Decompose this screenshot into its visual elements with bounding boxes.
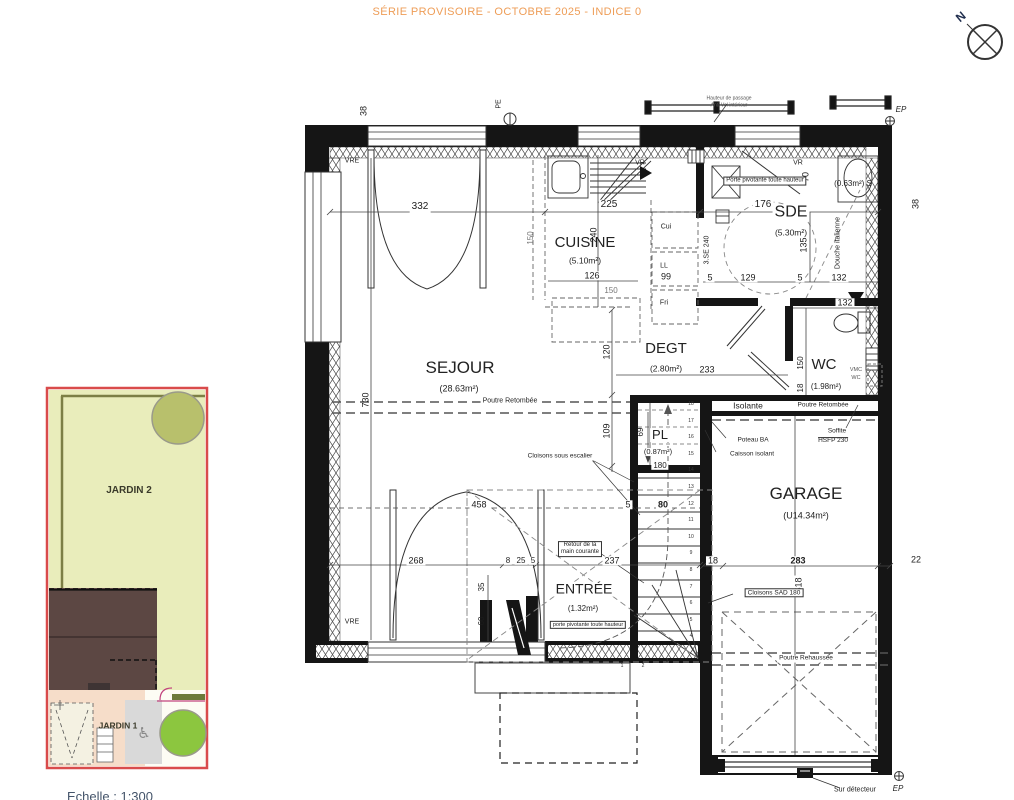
dim-135: 135 bbox=[799, 237, 808, 252]
dim-176: 176 bbox=[753, 200, 774, 211]
dim-268: 268 bbox=[406, 556, 425, 565]
dim-69: 69 bbox=[637, 428, 645, 437]
winder-step-number: 1 bbox=[621, 663, 624, 669]
stair-step-number: 10 bbox=[688, 534, 694, 540]
tree-green bbox=[160, 710, 206, 756]
room-pl-area: (0.87m²) bbox=[642, 448, 674, 456]
vr-tag-kitchen: VR bbox=[635, 159, 645, 166]
dim-332: 332 bbox=[410, 202, 431, 213]
beam-label-garage: Poutre Retombée bbox=[796, 403, 851, 410]
dim-132-wc-top: 132 bbox=[835, 298, 854, 307]
dim-120: 120 bbox=[602, 342, 611, 361]
wheelchair-icon: ♿ bbox=[137, 726, 150, 742]
pivot-door-label-entree: porte pivotante toute hauteur bbox=[550, 621, 626, 629]
beam-label-sejour: Poutre Retombée bbox=[481, 397, 540, 404]
appliance-fri: Fri bbox=[660, 299, 668, 306]
dim-80: 80 bbox=[656, 500, 670, 509]
ep-tag-bottom: EP bbox=[893, 785, 904, 793]
vmc-label-line2: WC bbox=[851, 376, 860, 382]
dim-283: 283 bbox=[788, 556, 807, 565]
dim-225: 225 bbox=[599, 200, 620, 211]
stair-step-number: 12 bbox=[688, 501, 694, 507]
stair-step-number: 9 bbox=[690, 550, 693, 556]
room-degt-area: (2.80m²) bbox=[650, 365, 682, 374]
dim-25: 25 bbox=[515, 557, 528, 565]
dim-458: 458 bbox=[469, 500, 488, 509]
stair-step-number: 13 bbox=[688, 484, 694, 490]
appliance-ll: LL bbox=[660, 262, 668, 269]
room-sde-area: (5.30m²) bbox=[773, 229, 809, 238]
dim-109: 109 bbox=[602, 421, 611, 440]
room-cuisine-area: (5.10m²) bbox=[569, 257, 601, 266]
room-sejour-name: SEJOUR bbox=[426, 359, 495, 377]
cloisons-sad-label: Cloisons SAD 180 bbox=[745, 588, 804, 597]
dim-132-sde: 132 bbox=[829, 273, 848, 282]
stair-step-number: 15 bbox=[688, 451, 694, 457]
parking-spot bbox=[51, 703, 93, 764]
pivot-door-label-sde: Porte pivotante toute hauteur bbox=[723, 177, 806, 186]
stair-step-number: 17 bbox=[688, 418, 694, 424]
dim-99: 99 bbox=[661, 272, 671, 281]
handrail-note-line2: main courante bbox=[561, 549, 599, 555]
jardin1-label: JARDIN 1 bbox=[99, 722, 138, 731]
dim-18-wc: 18 bbox=[797, 384, 805, 393]
sheet-title: SÉRIE PROVISOIRE - OCTOBRE 2025 - INDICE… bbox=[372, 7, 641, 19]
dim-60: 60 bbox=[478, 617, 486, 626]
soffite-label-line1: Soffite bbox=[828, 429, 846, 436]
appliance-cui: Cui bbox=[661, 223, 672, 230]
building-footprint bbox=[49, 588, 157, 690]
room-entree-name: ENTRÉE bbox=[554, 582, 615, 597]
canopy-outline bbox=[500, 693, 637, 763]
scale-label: Echelle : 1:300 bbox=[67, 790, 153, 800]
dim-129: 129 bbox=[738, 273, 757, 282]
dim-5-porch: 5 bbox=[529, 557, 537, 565]
hall-ceiling-cross bbox=[467, 490, 712, 662]
porch-slab bbox=[475, 663, 630, 693]
passage-note-line1: Hauteur de passage bbox=[706, 96, 751, 101]
stair-step-number: 11 bbox=[688, 517, 693, 523]
dim-240-cuisine: 240 bbox=[589, 227, 598, 242]
window-tag-vre-bottom: VRE bbox=[345, 618, 359, 625]
room-wc-name: WC bbox=[810, 357, 839, 373]
sur-detecteur-label: Sur détecteur bbox=[834, 786, 876, 793]
windows bbox=[305, 126, 800, 662]
dim-730: 730 bbox=[361, 392, 370, 407]
passage-note-line2: Anti-Vol intérieur bbox=[711, 103, 748, 108]
winder-step-number: 3 bbox=[666, 658, 669, 664]
dim-150-kitchen: 150 bbox=[602, 287, 619, 295]
poteau-ba-label: Poteau BA bbox=[737, 438, 768, 445]
floor-plan-sheet: SÉRIE PROVISOIRE - OCTOBRE 2025 - INDICE… bbox=[0, 0, 1014, 800]
stair-step-number: 18 bbox=[688, 401, 694, 407]
dim-150-wc: 150 bbox=[797, 356, 805, 369]
sliding-door-tag: 3.SE 240 bbox=[703, 236, 710, 265]
north-compass bbox=[967, 24, 1002, 59]
stair-step-number: 16 bbox=[688, 434, 694, 440]
stair-step-number: 14 bbox=[688, 467, 694, 473]
room-entree-area: (1.32m²) bbox=[566, 605, 600, 613]
stair-step-number: 7 bbox=[690, 584, 693, 590]
jardin2-label: JARDIN 2 bbox=[106, 486, 152, 497]
cloisons-escalier-label: Cloisons sous escalier bbox=[526, 454, 595, 461]
stair-step-number: 8 bbox=[690, 567, 693, 573]
dim-35: 35 bbox=[478, 583, 486, 592]
dim-38-topleft: 38 bbox=[359, 106, 368, 116]
exterior-stairs bbox=[97, 728, 113, 762]
window-tag-vre-top: VRE bbox=[345, 157, 359, 164]
room-garage-name: GARAGE bbox=[770, 485, 843, 503]
stair-step-number: 5 bbox=[690, 617, 693, 623]
room-garage-area: (U14.34m²) bbox=[783, 511, 829, 520]
ep-tag-top: EP bbox=[896, 106, 907, 114]
isolante-label: Isolante bbox=[731, 402, 765, 411]
stair-step-number: 4 bbox=[690, 633, 693, 639]
tree-olive bbox=[152, 392, 204, 444]
room-sde-name: SDE bbox=[773, 205, 810, 222]
handrail-note: Retour de la main courante bbox=[558, 541, 602, 557]
dim-5-sde-left: 5 bbox=[705, 273, 714, 282]
dim-150-left: 150 bbox=[527, 231, 535, 244]
soffite-label-line2: HSFP 230 bbox=[818, 437, 848, 445]
room-cuisine-name: CUISINE bbox=[555, 235, 616, 251]
vmc-label-line1: VMC bbox=[850, 368, 862, 374]
winder-step-number: 2 bbox=[642, 663, 645, 669]
douche-italienne-label: Douche italienne bbox=[834, 217, 841, 269]
dim-5-stair: 5 bbox=[623, 500, 632, 509]
dim-237: 237 bbox=[602, 556, 621, 565]
site-plan bbox=[47, 388, 207, 768]
dim-38-right: 38 bbox=[911, 199, 920, 209]
room-sejour-area: (28.63m²) bbox=[439, 384, 478, 393]
room-degt-name: DEGT bbox=[645, 341, 687, 357]
room-wc-area: (1.98m²) bbox=[809, 383, 843, 391]
poutre-rehaussee-label: Poutre Rehaussée bbox=[777, 656, 835, 663]
pe-tag: PE bbox=[495, 99, 502, 108]
vr-tag-sde: VR bbox=[793, 159, 803, 166]
dim-18-garage: 18 bbox=[706, 556, 720, 565]
fence-rails bbox=[645, 96, 891, 114]
dim-126: 126 bbox=[582, 271, 601, 280]
dim-233: 233 bbox=[697, 365, 716, 374]
handrail-note-line1: Retour de la bbox=[564, 542, 597, 548]
dim-8: 8 bbox=[504, 557, 512, 565]
closet-s-label: (0.63m²) S bbox=[834, 180, 872, 188]
dim-5-sde-right: 5 bbox=[795, 273, 804, 282]
garage-door-area bbox=[718, 612, 878, 788]
caisson-isolant-label: Caisson isolant bbox=[730, 452, 774, 459]
stair-step-number: 6 bbox=[690, 600, 693, 606]
dim-180: 180 bbox=[651, 462, 668, 470]
room-pl-name: PL bbox=[650, 428, 670, 442]
dim-22: 22 bbox=[911, 555, 921, 564]
